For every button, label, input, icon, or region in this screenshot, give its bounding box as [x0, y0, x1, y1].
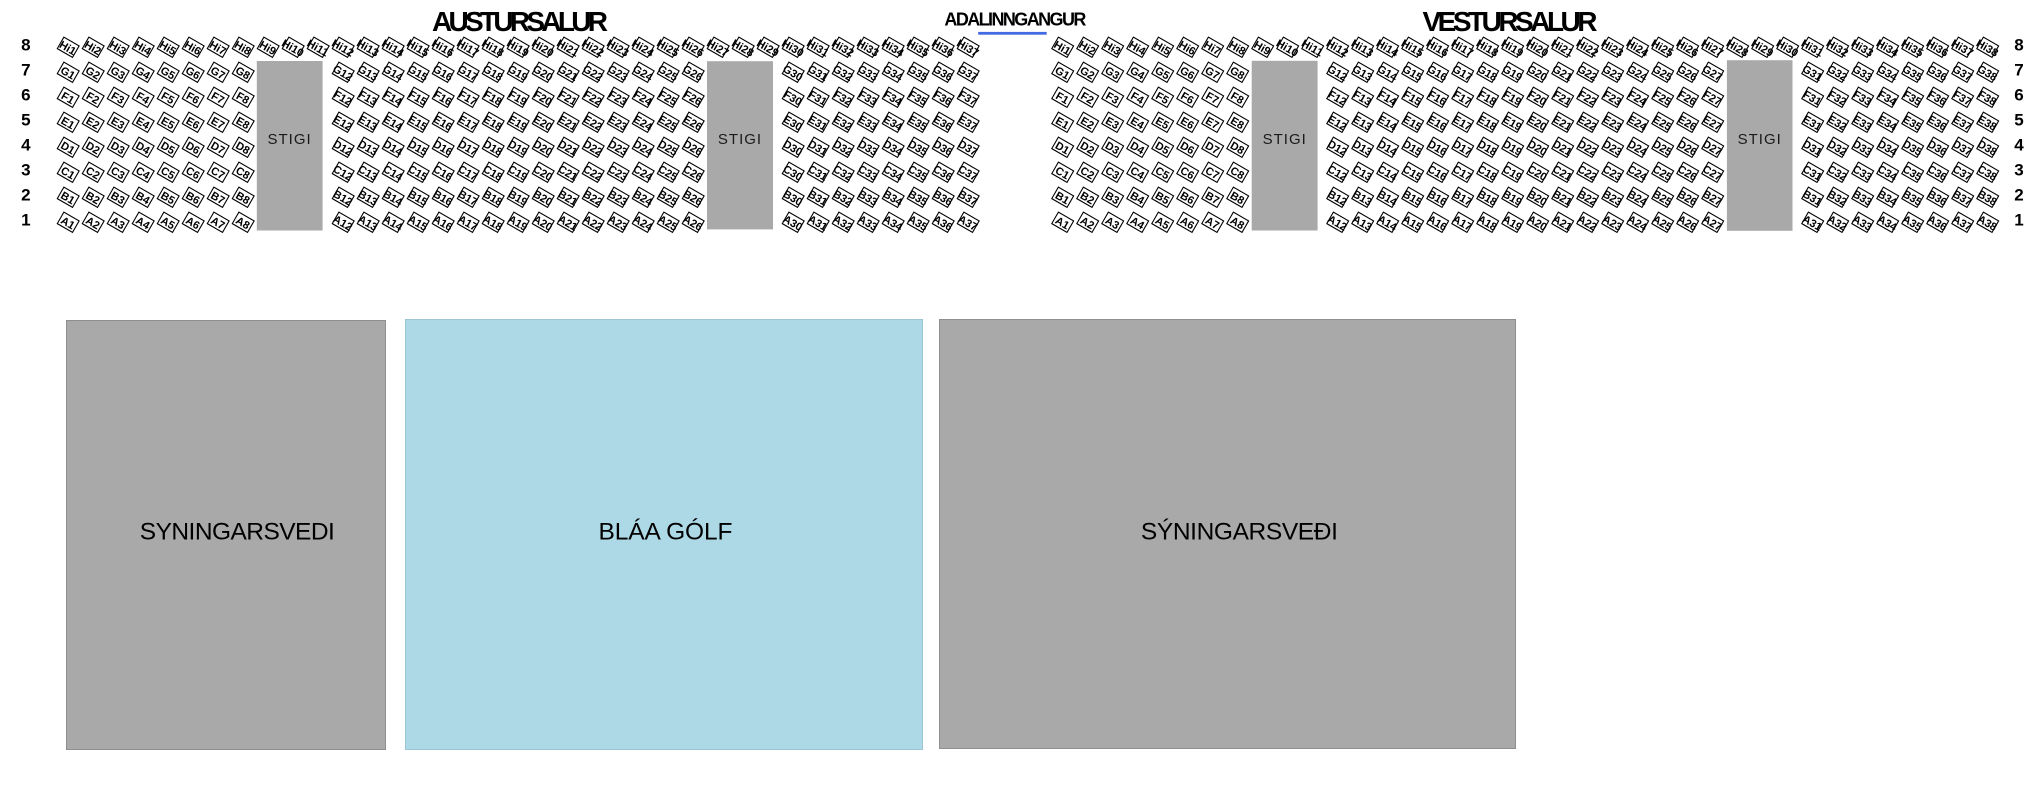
svg-text:F25: F25: [656, 89, 678, 109]
svg-text:E25: E25: [656, 114, 679, 134]
svg-text:STIGI: STIGI: [1738, 131, 1782, 148]
svg-text:Hi4: Hi4: [1127, 39, 1149, 58]
svg-text:E31: E31: [1800, 114, 1823, 134]
svg-text:B32: B32: [1825, 188, 1848, 208]
svg-text:Hi26: Hi26: [679, 38, 705, 60]
svg-text:A32: A32: [1825, 213, 1848, 233]
svg-text:A32: A32: [831, 213, 854, 233]
svg-text:E37: E37: [1950, 114, 1973, 134]
svg-text:5: 5: [21, 110, 30, 129]
svg-text:E25: E25: [1650, 114, 1673, 134]
svg-text:D22: D22: [1575, 138, 1598, 158]
svg-text:D12: D12: [331, 138, 354, 158]
svg-text:G14: G14: [1375, 63, 1400, 84]
svg-text:D30: D30: [781, 138, 804, 158]
svg-text:G35: G35: [1900, 63, 1924, 84]
svg-text:A38: A38: [1975, 213, 1998, 233]
svg-text:D18: D18: [481, 138, 504, 158]
svg-text:F30: F30: [781, 89, 803, 109]
svg-text:Hi23: Hi23: [1599, 38, 1625, 60]
svg-text:B22: B22: [1575, 188, 1598, 208]
svg-text:E36: E36: [931, 114, 954, 134]
svg-text:Hi35: Hi35: [904, 38, 930, 60]
svg-text:B36: B36: [1925, 188, 1948, 208]
svg-text:2: 2: [2014, 185, 2023, 204]
svg-text:B30: B30: [781, 188, 804, 208]
svg-text:B31: B31: [1800, 188, 1823, 208]
svg-text:BLÁA GÓLF: BLÁA GÓLF: [599, 518, 733, 545]
svg-text:Hi20: Hi20: [1524, 38, 1550, 60]
svg-text:A27: A27: [1700, 213, 1723, 233]
svg-text:Hi27: Hi27: [704, 38, 730, 60]
svg-text:E21: E21: [556, 114, 579, 134]
svg-text:A33: A33: [1850, 213, 1873, 233]
svg-text:E19: E19: [1500, 114, 1523, 134]
svg-text:G30: G30: [780, 63, 804, 84]
svg-text:E24: E24: [1625, 114, 1649, 135]
svg-text:E37: E37: [956, 114, 979, 134]
svg-text:VESTURSALUR: VESTURSALUR: [1423, 6, 1598, 37]
svg-text:E15: E15: [1400, 114, 1423, 134]
svg-text:C24: C24: [631, 163, 655, 184]
svg-text:Hi13: Hi13: [1349, 38, 1375, 60]
svg-text:A24: A24: [1625, 213, 1649, 234]
svg-text:D25: D25: [656, 138, 679, 158]
svg-text:A19: A19: [506, 213, 529, 233]
svg-text:F16: F16: [1426, 89, 1448, 109]
svg-text:6: 6: [2014, 85, 2023, 104]
svg-text:D26: D26: [681, 138, 704, 158]
svg-text:Hi33: Hi33: [1849, 38, 1875, 60]
svg-text:SYNINGARSVEDI: SYNINGARSVEDI: [140, 518, 335, 545]
svg-text:D32: D32: [1825, 138, 1848, 158]
svg-text:C19: C19: [506, 163, 529, 183]
svg-text:4: 4: [2014, 135, 2024, 154]
svg-text:E13: E13: [356, 114, 379, 134]
svg-text:Hi34: Hi34: [1874, 38, 1901, 60]
svg-text:Hi31: Hi31: [1799, 38, 1825, 60]
svg-text:Hi22: Hi22: [579, 38, 605, 60]
svg-text:Hi5: Hi5: [1152, 39, 1173, 58]
svg-text:E26: E26: [681, 114, 704, 134]
svg-text:STIGI: STIGI: [718, 131, 762, 148]
svg-text:E23: E23: [1600, 114, 1623, 134]
svg-text:F37: F37: [956, 89, 978, 109]
svg-text:E16: E16: [431, 114, 454, 134]
svg-text:F26: F26: [1676, 89, 1698, 109]
svg-text:G20: G20: [1525, 63, 1549, 84]
svg-text:C34: C34: [881, 163, 905, 184]
svg-text:C30: C30: [781, 163, 804, 183]
svg-text:Hi4: Hi4: [132, 39, 154, 58]
svg-text:C23: C23: [606, 163, 629, 183]
svg-text:C21: C21: [556, 163, 579, 183]
svg-text:F17: F17: [456, 89, 478, 109]
svg-text:B32: B32: [831, 188, 854, 208]
svg-text:A24: A24: [631, 213, 655, 234]
svg-text:E31: E31: [806, 114, 829, 134]
svg-text:Hi33: Hi33: [854, 38, 880, 60]
svg-text:A20: A20: [531, 213, 554, 233]
svg-text:B20: B20: [1525, 188, 1548, 208]
svg-text:Hi38: Hi38: [1974, 38, 2000, 60]
svg-text:Hi21: Hi21: [1549, 38, 1575, 60]
svg-text:B34: B34: [881, 188, 905, 209]
svg-text:B20: B20: [531, 188, 554, 208]
svg-text:F15: F15: [1401, 89, 1423, 109]
svg-text:B13: B13: [1350, 188, 1373, 208]
svg-text:C25: C25: [656, 163, 679, 183]
svg-text:F31: F31: [806, 89, 828, 109]
svg-text:3: 3: [21, 160, 30, 179]
svg-text:B22: B22: [581, 188, 604, 208]
svg-text:G22: G22: [580, 63, 604, 84]
svg-text:D33: D33: [1850, 138, 1873, 158]
svg-text:Hi30: Hi30: [779, 38, 805, 60]
svg-text:C21: C21: [1550, 163, 1573, 183]
svg-text:E35: E35: [1900, 114, 1923, 134]
svg-text:C14: C14: [1375, 163, 1399, 184]
svg-text:C16: C16: [431, 163, 454, 183]
svg-text:E22: E22: [581, 114, 604, 134]
svg-text:D36: D36: [931, 138, 954, 158]
svg-text:6: 6: [21, 85, 30, 104]
svg-text:Hi19: Hi19: [1499, 38, 1525, 60]
svg-text:G23: G23: [605, 63, 629, 84]
svg-text:A13: A13: [1350, 213, 1373, 233]
svg-text:Hi6: Hi6: [1177, 39, 1198, 58]
svg-text:A15: A15: [1400, 213, 1423, 233]
svg-text:E17: E17: [1450, 114, 1473, 134]
svg-text:G33: G33: [855, 63, 879, 84]
svg-text:A31: A31: [806, 213, 829, 233]
svg-text:A34: A34: [881, 213, 905, 234]
svg-text:F18: F18: [1476, 89, 1498, 109]
svg-text:G24: G24: [630, 63, 655, 84]
svg-text:A37: A37: [1950, 213, 1973, 233]
svg-text:Hi35: Hi35: [1899, 38, 1925, 60]
svg-text:C22: C22: [1575, 163, 1598, 183]
svg-text:B19: B19: [506, 188, 529, 208]
svg-text:Hi24: Hi24: [1624, 38, 1651, 60]
svg-text:B21: B21: [1550, 188, 1573, 208]
svg-text:B15: B15: [406, 188, 429, 208]
svg-text:A17: A17: [1450, 213, 1473, 233]
svg-text:G17: G17: [1450, 63, 1474, 84]
svg-text:A18: A18: [481, 213, 504, 233]
svg-text:Hi15: Hi15: [404, 38, 430, 60]
svg-text:Hi32: Hi32: [1824, 38, 1850, 60]
svg-text:F37: F37: [1951, 89, 1973, 109]
svg-text:B21: B21: [556, 188, 579, 208]
svg-text:E32: E32: [1825, 114, 1848, 134]
svg-text:E23: E23: [606, 114, 629, 134]
svg-text:5: 5: [2014, 110, 2023, 129]
svg-text:B38: B38: [1975, 188, 1998, 208]
svg-text:F25: F25: [1651, 89, 1673, 109]
svg-text:B18: B18: [481, 188, 504, 208]
svg-text:G20: G20: [530, 63, 554, 84]
svg-text:E27: E27: [1700, 114, 1723, 134]
svg-text:G25: G25: [655, 63, 679, 84]
svg-text:Hi14: Hi14: [1374, 38, 1401, 60]
svg-text:C33: C33: [856, 163, 879, 183]
svg-text:Hi21: Hi21: [554, 38, 580, 60]
svg-text:F20: F20: [531, 89, 553, 109]
svg-text:E21: E21: [1550, 114, 1573, 134]
svg-text:A14: A14: [381, 213, 405, 234]
svg-text:E33: E33: [1850, 114, 1873, 134]
svg-text:Hi26: Hi26: [1674, 38, 1700, 60]
svg-text:E12: E12: [1325, 114, 1348, 134]
svg-text:D20: D20: [531, 138, 554, 158]
svg-text:B25: B25: [656, 188, 679, 208]
svg-text:Hi1: Hi1: [1052, 39, 1073, 58]
svg-text:C12: C12: [331, 163, 354, 183]
svg-text:C22: C22: [581, 163, 604, 183]
svg-text:D21: D21: [556, 138, 579, 158]
svg-text:D12: D12: [1325, 138, 1348, 158]
svg-text:D17: D17: [1450, 138, 1473, 158]
svg-text:A36: A36: [1925, 213, 1948, 233]
svg-text:A12: A12: [331, 213, 354, 233]
svg-text:Hi17: Hi17: [454, 38, 480, 60]
svg-text:Hi9: Hi9: [1252, 39, 1273, 58]
svg-text:Hi16: Hi16: [1424, 38, 1450, 60]
svg-text:E18: E18: [1475, 114, 1498, 134]
svg-text:A18: A18: [1475, 213, 1498, 233]
svg-text:A25: A25: [1650, 213, 1673, 233]
svg-text:G18: G18: [480, 63, 504, 84]
svg-text:C13: C13: [1350, 163, 1373, 183]
svg-text:G14: G14: [380, 63, 405, 84]
svg-text:Hi15: Hi15: [1399, 38, 1425, 60]
svg-text:G15: G15: [405, 63, 429, 84]
svg-text:Hi37: Hi37: [954, 38, 980, 60]
svg-text:C36: C36: [931, 163, 954, 183]
svg-text:B24: B24: [631, 188, 655, 209]
svg-text:C13: C13: [356, 163, 379, 183]
svg-text:Hi23: Hi23: [604, 38, 630, 60]
svg-text:D33: D33: [856, 138, 879, 158]
svg-text:A16: A16: [431, 213, 454, 233]
svg-text:F14: F14: [381, 89, 404, 109]
svg-text:G13: G13: [1350, 63, 1374, 84]
svg-text:F32: F32: [831, 89, 853, 109]
svg-text:D38: D38: [1975, 138, 1998, 158]
svg-text:D34: D34: [1875, 138, 1899, 159]
svg-text:F33: F33: [1851, 89, 1873, 109]
svg-text:A37: A37: [956, 213, 979, 233]
svg-text:C15: C15: [1400, 163, 1423, 183]
svg-text:G21: G21: [1550, 63, 1574, 84]
svg-text:C32: C32: [1825, 163, 1848, 183]
svg-text:F23: F23: [606, 89, 628, 109]
svg-text:B27: B27: [1700, 188, 1723, 208]
svg-text:STIGI: STIGI: [1263, 131, 1307, 148]
svg-text:F13: F13: [1351, 89, 1373, 109]
svg-text:Hi1: Hi1: [57, 39, 78, 58]
svg-text:E19: E19: [506, 114, 529, 134]
svg-text:E36: E36: [1925, 114, 1948, 134]
svg-text:D18: D18: [1475, 138, 1498, 158]
svg-text:A23: A23: [1600, 213, 1623, 233]
svg-text:B37: B37: [956, 188, 979, 208]
svg-text:A23: A23: [606, 213, 629, 233]
svg-text:Hi22: Hi22: [1574, 38, 1600, 60]
svg-text:Hi29: Hi29: [754, 38, 780, 60]
svg-text:F31: F31: [1801, 89, 1823, 109]
svg-text:C35: C35: [1900, 163, 1923, 183]
svg-text:C27: C27: [1700, 163, 1723, 183]
svg-text:F34: F34: [1876, 89, 1899, 109]
svg-text:C18: C18: [481, 163, 504, 183]
svg-text:A34: A34: [1875, 213, 1899, 234]
svg-text:C32: C32: [831, 163, 854, 183]
svg-text:A31: A31: [1800, 213, 1823, 233]
svg-text:C25: C25: [1650, 163, 1673, 183]
svg-text:F33: F33: [856, 89, 878, 109]
svg-text:F22: F22: [1576, 89, 1598, 109]
svg-text:G12: G12: [1325, 63, 1349, 84]
svg-text:Hi25: Hi25: [1649, 38, 1675, 60]
svg-text:G15: G15: [1400, 63, 1424, 84]
svg-text:1: 1: [21, 210, 30, 229]
svg-text:Hi11: Hi11: [305, 38, 331, 60]
svg-text:F16: F16: [431, 89, 453, 109]
svg-text:Hi3: Hi3: [107, 39, 128, 58]
svg-text:B36: B36: [931, 188, 954, 208]
svg-text:B16: B16: [1425, 188, 1448, 208]
svg-text:C35: C35: [906, 163, 929, 183]
svg-text:A26: A26: [681, 213, 704, 233]
svg-text:C12: C12: [1325, 163, 1348, 183]
svg-text:D21: D21: [1550, 138, 1573, 158]
svg-text:B26: B26: [681, 188, 704, 208]
svg-text:D15: D15: [1400, 138, 1423, 158]
svg-text:A36: A36: [931, 213, 954, 233]
svg-text:1: 1: [2014, 210, 2023, 229]
svg-text:Hi12: Hi12: [1324, 38, 1350, 60]
svg-text:Hi18: Hi18: [479, 38, 505, 60]
svg-text:Hi13: Hi13: [354, 38, 380, 60]
svg-text:D26: D26: [1675, 138, 1698, 158]
svg-text:B17: B17: [1450, 188, 1473, 208]
svg-text:F26: F26: [681, 89, 703, 109]
svg-text:B12: B12: [1325, 188, 1348, 208]
svg-text:Hi36: Hi36: [929, 38, 955, 60]
svg-text:D35: D35: [1900, 138, 1923, 158]
svg-text:C34: C34: [1875, 163, 1899, 184]
svg-text:Hi10: Hi10: [279, 38, 305, 60]
svg-text:G19: G19: [505, 63, 529, 84]
svg-text:D31: D31: [1800, 138, 1823, 158]
svg-text:D35: D35: [906, 138, 929, 158]
svg-text:Hi5: Hi5: [157, 39, 178, 58]
svg-text:A26: A26: [1675, 213, 1698, 233]
svg-text:A13: A13: [356, 213, 379, 233]
svg-text:C24: C24: [1625, 163, 1649, 184]
svg-text:C18: C18: [1475, 163, 1498, 183]
svg-text:F32: F32: [1826, 89, 1848, 109]
svg-text:F35: F35: [906, 89, 928, 109]
svg-text:G35: G35: [905, 63, 929, 84]
svg-text:8: 8: [2014, 35, 2023, 54]
svg-text:A15: A15: [406, 213, 429, 233]
svg-text:F35: F35: [1901, 89, 1923, 109]
svg-text:C17: C17: [1450, 163, 1473, 183]
svg-text:F15: F15: [406, 89, 428, 109]
svg-text:G17: G17: [455, 63, 479, 84]
svg-text:C16: C16: [1425, 163, 1448, 183]
svg-text:G19: G19: [1500, 63, 1524, 84]
svg-text:G31: G31: [1800, 63, 1824, 84]
svg-text:F22: F22: [581, 89, 603, 109]
svg-text:F18: F18: [481, 89, 503, 109]
svg-text:F34: F34: [881, 89, 904, 109]
svg-text:Hi2: Hi2: [1077, 39, 1098, 58]
svg-text:Hi18: Hi18: [1474, 38, 1500, 60]
svg-text:D13: D13: [356, 138, 379, 158]
svg-text:A17: A17: [456, 213, 479, 233]
svg-text:Hi17: Hi17: [1449, 38, 1475, 60]
svg-text:B26: B26: [1675, 188, 1698, 208]
svg-text:G37: G37: [1950, 63, 1974, 84]
svg-text:C31: C31: [806, 163, 829, 183]
svg-text:D19: D19: [1500, 138, 1523, 158]
svg-text:G32: G32: [1825, 63, 1849, 84]
svg-text:D16: D16: [431, 138, 454, 158]
svg-text:A22: A22: [581, 213, 604, 233]
svg-text:B34: B34: [1875, 188, 1899, 209]
svg-text:G22: G22: [1575, 63, 1599, 84]
svg-text:Hi8: Hi8: [1227, 39, 1248, 58]
svg-text:G23: G23: [1600, 63, 1624, 84]
svg-text:D37: D37: [1950, 138, 1973, 158]
svg-text:G21: G21: [555, 63, 579, 84]
svg-text:F14: F14: [1376, 89, 1399, 109]
svg-text:Hi10: Hi10: [1274, 38, 1300, 60]
svg-text:G36: G36: [1925, 63, 1949, 84]
svg-text:F24: F24: [1626, 89, 1649, 109]
svg-text:G24: G24: [1625, 63, 1650, 84]
svg-text:G33: G33: [1850, 63, 1874, 84]
svg-text:E16: E16: [1425, 114, 1448, 134]
svg-text:G26: G26: [1675, 63, 1699, 84]
svg-text:F12: F12: [1326, 89, 1348, 109]
svg-text:D17: D17: [456, 138, 479, 158]
svg-text:Hi37: Hi37: [1949, 38, 1975, 60]
svg-text:8: 8: [21, 35, 30, 54]
svg-text:E18: E18: [481, 114, 504, 134]
svg-text:Hi2: Hi2: [82, 39, 103, 58]
svg-text:D19: D19: [506, 138, 529, 158]
svg-text:F21: F21: [556, 89, 578, 109]
svg-text:G37: G37: [955, 63, 979, 84]
svg-text:C37: C37: [956, 163, 979, 183]
svg-text:B37: B37: [1950, 188, 1973, 208]
svg-text:A25: A25: [656, 213, 679, 233]
svg-text:Hi28: Hi28: [729, 38, 755, 60]
svg-text:B14: B14: [1375, 188, 1399, 209]
svg-text:A19: A19: [1500, 213, 1523, 233]
svg-text:B33: B33: [1850, 188, 1873, 208]
svg-text:D31: D31: [806, 138, 829, 158]
svg-text:C26: C26: [1675, 163, 1698, 183]
svg-text:Hi32: Hi32: [829, 38, 855, 60]
svg-text:A30: A30: [781, 213, 804, 233]
svg-text:E26: E26: [1675, 114, 1698, 134]
